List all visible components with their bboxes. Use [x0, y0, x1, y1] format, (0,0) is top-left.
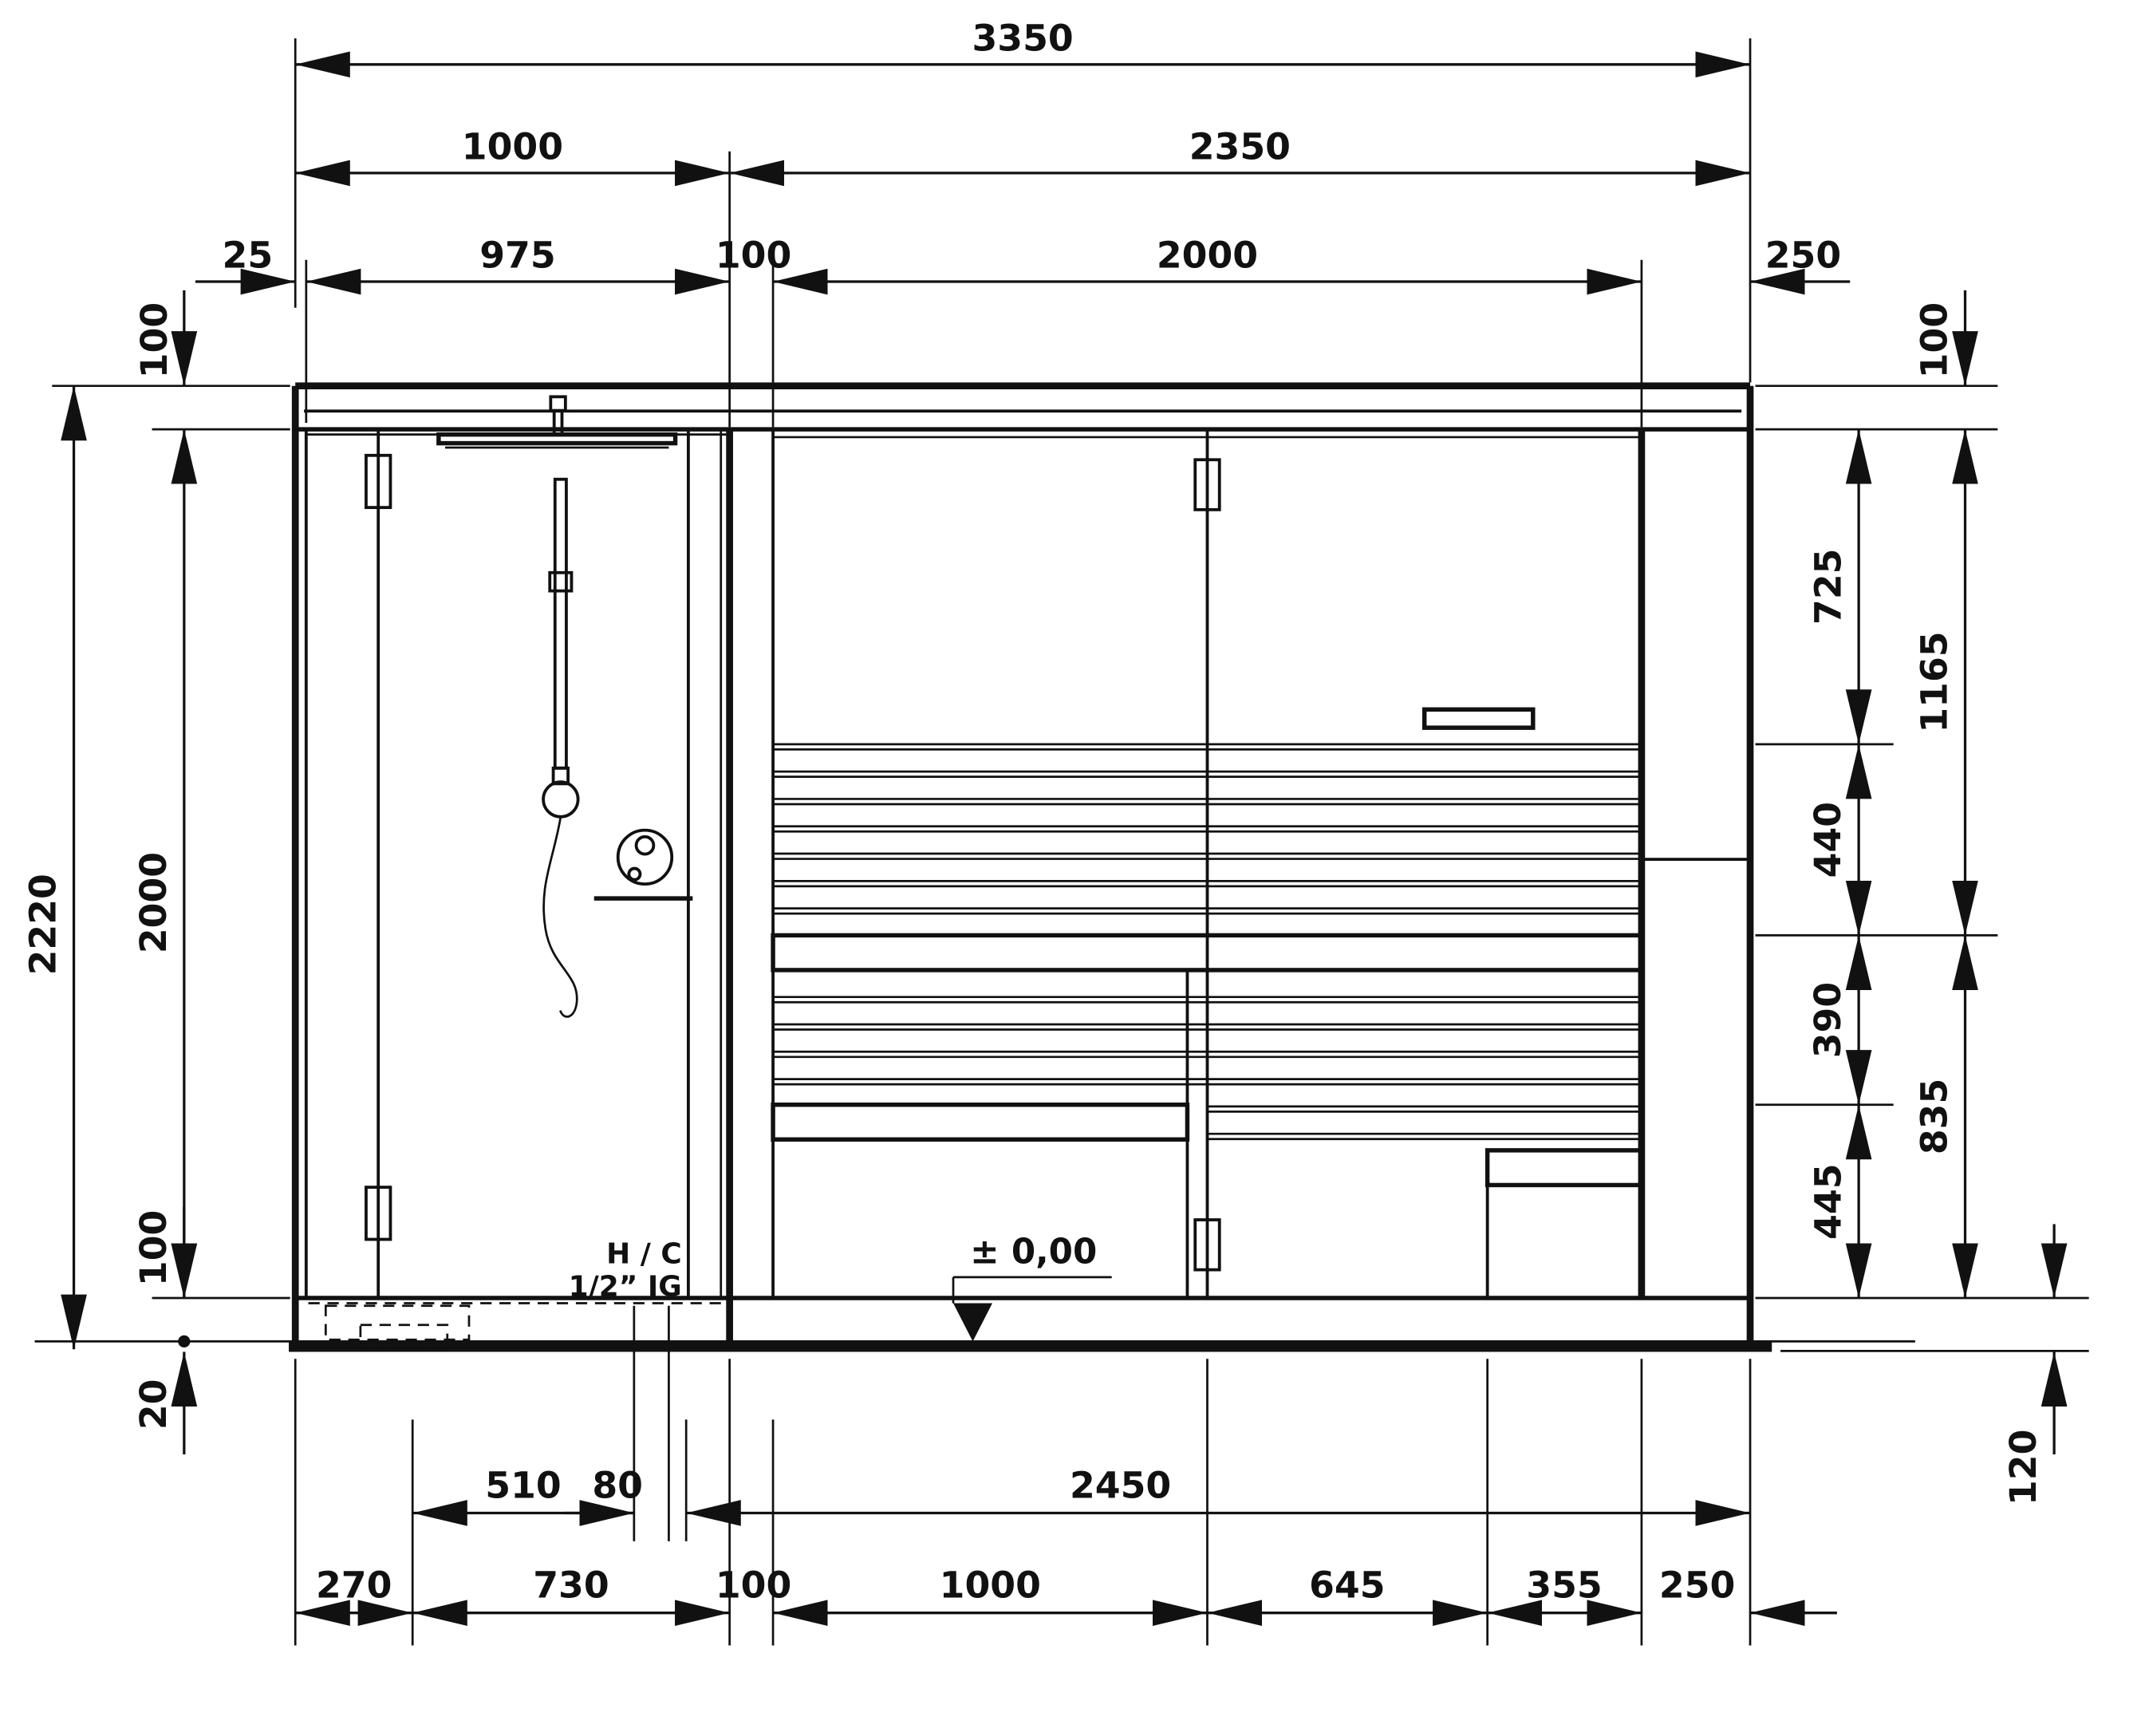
base-plinth-bar: [289, 1343, 1772, 1352]
thermostat-knob-bottom: [629, 869, 640, 880]
dimension-bench-gap: 440: [1807, 744, 1859, 936]
dim-label-total-width: 3350: [972, 17, 1073, 59]
dim-label-2450: 2450: [1070, 1464, 1171, 1506]
dimension-1000-bottom: 1000: [773, 1564, 1207, 1613]
step-bench-apron: [1488, 1150, 1642, 1186]
datum-dot: [178, 1336, 190, 1347]
shower-rail: [555, 479, 566, 768]
dimension-total-width: 3350: [295, 17, 1750, 64]
dimension-shower-width: 1000: [295, 126, 729, 173]
dimension-interior-height: 2000: [132, 429, 184, 1298]
dim-label-730: 730: [533, 1564, 609, 1607]
datum-triangle-icon: [953, 1304, 992, 1342]
rain-head-plate: [439, 435, 676, 444]
dimension-2450: 2450: [686, 1464, 1750, 1513]
dimension-total-height: 2220: [22, 386, 74, 1350]
shower-section: H / C 1/2” IG: [306, 397, 730, 1541]
dim-label-100-bottom: 100: [716, 1564, 791, 1607]
dim-label-lower-bench: 445: [1807, 1163, 1849, 1239]
dimension-355: 355: [1488, 1564, 1642, 1613]
dim-label-sauna-width: 2350: [1189, 126, 1291, 168]
dim-label-glass-front: 2000: [1157, 235, 1258, 277]
thermostat-knob-top: [637, 837, 654, 854]
sauna-door-handle: [1425, 709, 1533, 728]
dim-label-backrest-top: 725: [1807, 548, 1849, 624]
hand-shower-head: [543, 782, 578, 817]
dimension-80: 80: [565, 1464, 643, 1513]
sauna-section: [730, 429, 1750, 1341]
unit-outline: [35, 386, 1915, 1352]
dimension-270: 270: [295, 1564, 412, 1613]
dim-label-roof-left: 100: [133, 302, 175, 378]
dim-label-510: 510: [485, 1464, 561, 1506]
datum-marker: ± 0,00: [953, 1232, 1112, 1341]
dim-label-bottom-left: 100: [132, 1210, 175, 1286]
thermostat-dial: [618, 831, 672, 885]
dimension-lower-bench: 445: [1807, 1105, 1859, 1298]
dimension-lower-zone: 835: [1914, 935, 1966, 1298]
dimension-upper-zone: 1165: [1914, 429, 1966, 935]
dimension-backrest-top: 725: [1807, 429, 1859, 744]
dim-label-base-left: 20: [132, 1379, 175, 1430]
dim-label-bench-gap: 440: [1807, 802, 1849, 878]
dimension-roof-left: 100: [133, 290, 184, 386]
dim-label-left-offset: 25: [223, 235, 274, 277]
datum-label: ± 0,00: [970, 1232, 1097, 1272]
dimension-100-bottom: 100: [716, 1564, 791, 1607]
dimension-shower-inner: 975: [306, 235, 730, 282]
shower-hose: [544, 817, 578, 1017]
thermostat-control: [618, 831, 672, 885]
dim-label-base-right: 120: [2002, 1430, 2044, 1505]
rail-bracket: [550, 573, 571, 591]
dim-label-upper-zone: 1165: [1914, 631, 1956, 732]
dimension-right-zone-top: 250: [1750, 235, 1850, 282]
dim-label-lower-zone: 835: [1914, 1079, 1956, 1154]
dimension-250-bottom: 250: [1659, 1564, 1837, 1613]
wall-slats-right-extra: [1207, 1107, 1641, 1139]
dimension-glass-front: 2000: [773, 235, 1642, 282]
dim-label-shower-inner: 975: [479, 235, 555, 277]
dimension-730: 730: [412, 1564, 729, 1613]
technical-drawing: H / C 1/2” IG: [0, 0, 2141, 1736]
dimension-bottom-left: 100: [132, 1207, 184, 1298]
dim-label-80: 80: [592, 1464, 643, 1506]
dimension-roof-right: 100: [1914, 290, 1966, 386]
dim-label-right-zone-top: 250: [1765, 235, 1841, 277]
rain-shower-head: [439, 397, 676, 448]
dimension-base-left: 20: [132, 1336, 190, 1454]
dim-label-250-bottom: 250: [1659, 1564, 1735, 1607]
dimension-sauna-width: 2350: [730, 126, 1750, 173]
dim-label-post-top: 100: [716, 235, 791, 277]
dim-label-shower-width: 1000: [462, 126, 563, 168]
hc-size-label: 1/2” IG: [569, 1270, 682, 1303]
dimension-base-right: 120: [2002, 1224, 2054, 1505]
dimension-post-top: 100: [716, 235, 791, 277]
dimension-645: 645: [1207, 1564, 1487, 1613]
dimension-bench-step: 390: [1807, 935, 1859, 1104]
dim-label-645: 645: [1309, 1564, 1385, 1607]
dim-label-total-height: 2220: [22, 874, 65, 975]
extension-lines: [52, 38, 2088, 1645]
dim-label-1000-bottom: 1000: [940, 1564, 1041, 1607]
dim-label-bench-step: 390: [1807, 982, 1849, 1058]
dim-label-355: 355: [1526, 1564, 1602, 1607]
dim-label-interior-height: 2000: [132, 852, 175, 953]
dim-label-270: 270: [316, 1564, 392, 1607]
dim-label-roof-right: 100: [1914, 302, 1956, 378]
lower-bench-apron: [773, 1105, 1187, 1140]
hand-shower-assembly: [543, 479, 578, 1017]
dimension-left-offset: 25: [195, 235, 295, 282]
rain-head-supply-fitting: [550, 397, 566, 410]
hc-connection-label: H / C: [606, 1237, 682, 1270]
